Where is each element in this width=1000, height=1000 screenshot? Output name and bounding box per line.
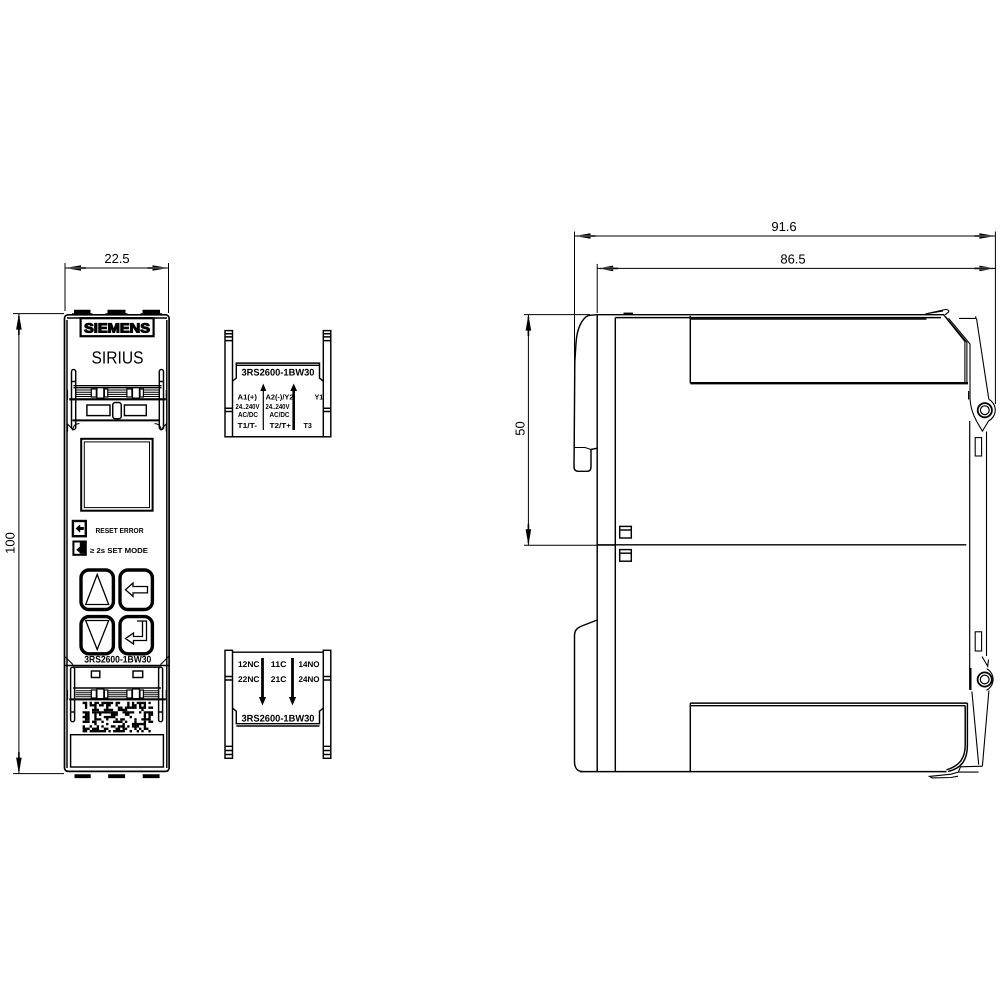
svg-text:SIRIUS: SIRIUS	[92, 347, 144, 367]
svg-text:14NO: 14NO	[299, 660, 321, 669]
svg-text:T3: T3	[304, 421, 312, 430]
svg-text:AC/DC: AC/DC	[270, 410, 290, 419]
svg-text:AC/DC: AC/DC	[238, 410, 258, 419]
svg-text:SIEMENS: SIEMENS	[84, 320, 150, 335]
svg-text:≥ 2s SET MODE: ≥ 2s SET MODE	[90, 546, 148, 555]
svg-text:24NO: 24NO	[299, 675, 321, 684]
svg-text:22.5: 22.5	[104, 251, 129, 266]
svg-text:12NC: 12NC	[238, 660, 260, 669]
svg-text:A2(-)/Y2: A2(-)/Y2	[266, 393, 294, 402]
svg-text:T2/T+: T2/T+	[270, 421, 292, 430]
svg-text:91.6: 91.6	[771, 219, 796, 234]
svg-text:Y1: Y1	[315, 393, 324, 402]
svg-text:50: 50	[513, 421, 528, 435]
svg-text:86.5: 86.5	[780, 252, 805, 267]
svg-text:RESET ERROR: RESET ERROR	[96, 526, 145, 535]
svg-text:3RS2600-1BW30: 3RS2600-1BW30	[84, 654, 151, 665]
svg-text:A1(+): A1(+)	[238, 393, 258, 402]
svg-text:T1/T-: T1/T-	[238, 421, 258, 430]
svg-text:11C: 11C	[271, 660, 287, 669]
svg-text:3RS2600-1BW30: 3RS2600-1BW30	[242, 714, 315, 725]
svg-text:100: 100	[3, 532, 18, 554]
svg-text:21C: 21C	[271, 675, 287, 684]
svg-text:3RS2600-1BW30: 3RS2600-1BW30	[242, 368, 315, 379]
svg-text:22NC: 22NC	[238, 675, 260, 684]
